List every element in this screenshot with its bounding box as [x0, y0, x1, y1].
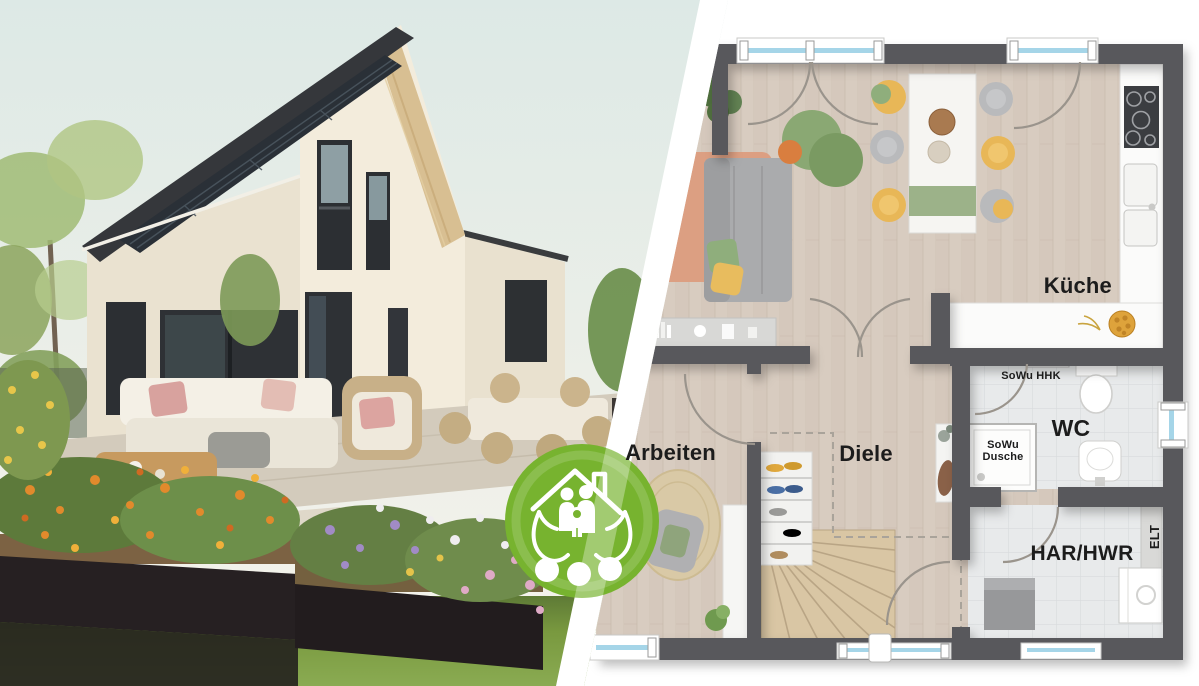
sideboard: [640, 318, 776, 347]
dining-table: [909, 74, 976, 233]
rattan-armchair: [342, 376, 422, 460]
washing-machine: [1119, 568, 1162, 623]
split-hero-image: Küche WC SoWu HHK SoWu Dusche Arbeiten D…: [0, 0, 1199, 686]
kitchen-island: [949, 303, 1163, 349]
sofa: [704, 158, 792, 302]
shoe-wardrobe: [758, 452, 812, 565]
window-har: [1021, 643, 1101, 659]
side-wing-window: [505, 280, 547, 362]
cooktop: [1124, 86, 1159, 148]
wall-right: [1163, 44, 1183, 660]
heat-pump: [984, 578, 1035, 630]
window-living: [737, 38, 884, 63]
window-arbeiten: [590, 635, 659, 660]
shower: [968, 424, 1036, 491]
scene-graphics: [0, 0, 1199, 686]
window-wc: [1158, 402, 1188, 448]
planter-left: [0, 457, 300, 686]
wc-sink: [1079, 441, 1121, 486]
window-kitchen: [1007, 38, 1098, 63]
kitchen-sink: [1124, 164, 1157, 206]
kitchen-counter: [1120, 64, 1163, 305]
